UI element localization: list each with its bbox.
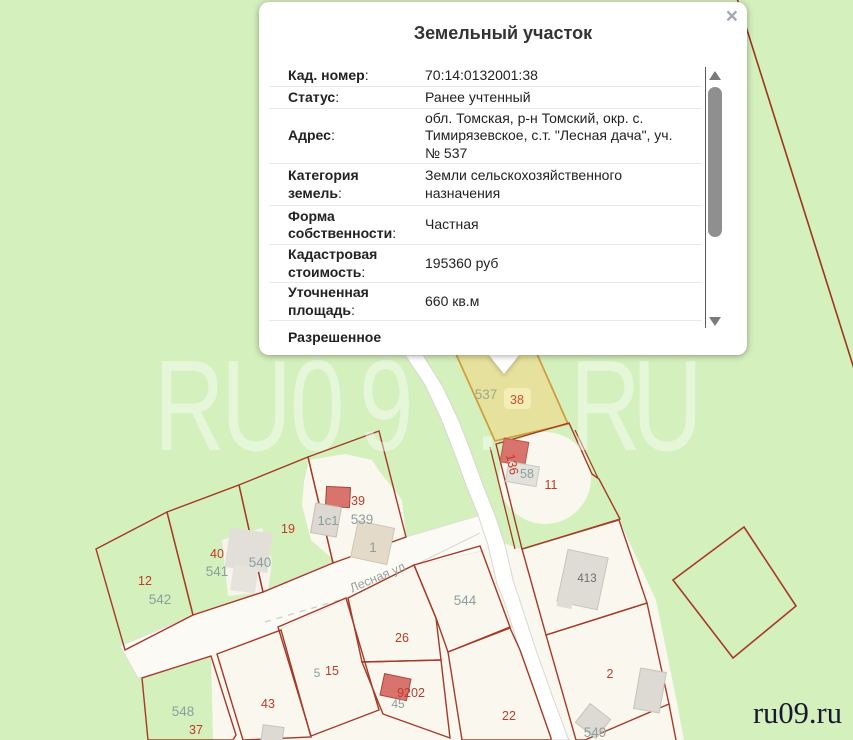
svg-text:413: 413 — [577, 573, 596, 585]
svg-text:544: 544 — [454, 593, 477, 608]
svg-text:540: 540 — [249, 555, 272, 570]
svg-text:11: 11 — [545, 478, 558, 492]
svg-text:9202: 9202 — [397, 686, 425, 700]
svg-text:37: 37 — [189, 723, 203, 737]
svg-text:43: 43 — [261, 697, 275, 711]
svg-text:541: 541 — [206, 564, 229, 579]
svg-text:39: 39 — [351, 494, 365, 508]
svg-text:22: 22 — [502, 709, 516, 723]
svg-text:15: 15 — [325, 664, 339, 678]
svg-text:26: 26 — [395, 631, 409, 645]
svg-text:12: 12 — [138, 574, 152, 588]
svg-text:ru09.ru: ru09.ru — [753, 696, 842, 730]
svg-text:58: 58 — [520, 467, 534, 481]
svg-text:5: 5 — [314, 666, 321, 680]
svg-text:40: 40 — [210, 547, 224, 561]
svg-text:539: 539 — [351, 512, 374, 527]
svg-text:1с1: 1с1 — [318, 513, 339, 528]
svg-text:548: 548 — [172, 704, 195, 719]
svg-text:1: 1 — [369, 540, 377, 555]
svg-text:542: 542 — [149, 592, 172, 607]
svg-text:19: 19 — [281, 522, 295, 536]
svg-text:2: 2 — [607, 667, 614, 681]
svg-text:549: 549 — [584, 725, 607, 740]
svg-text:38: 38 — [510, 393, 524, 407]
